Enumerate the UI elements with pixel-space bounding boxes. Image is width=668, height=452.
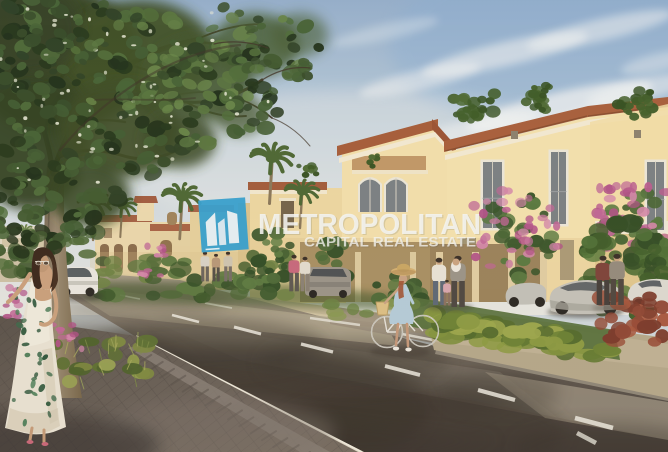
- svg-text:CAPITAL REAL ESTATE: CAPITAL REAL ESTATE: [304, 235, 476, 250]
